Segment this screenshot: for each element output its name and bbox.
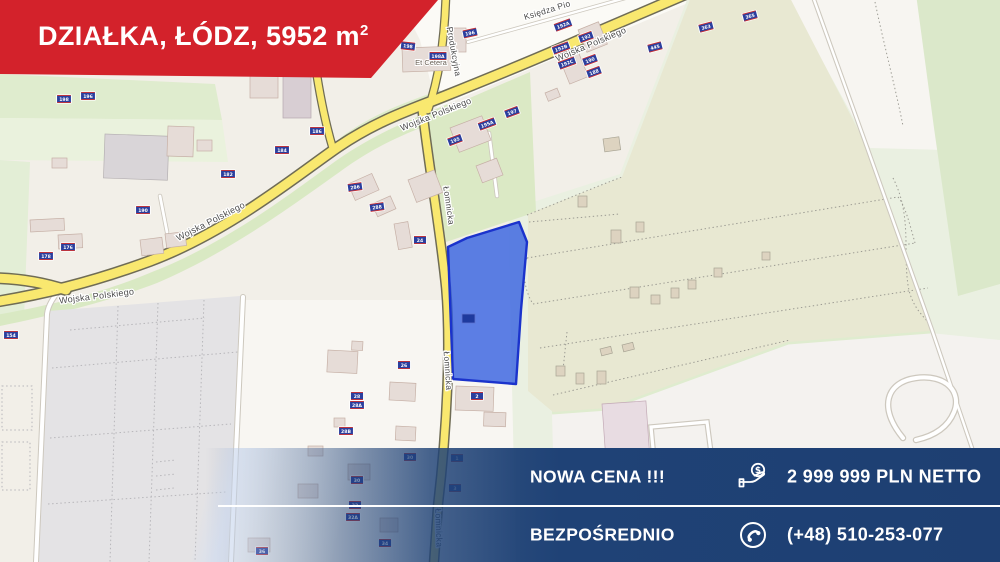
svg-text:176: 176 bbox=[63, 245, 73, 251]
money-in-hand-icon: $ bbox=[733, 457, 773, 497]
svg-text:190: 190 bbox=[138, 208, 148, 214]
svg-text:198: 198 bbox=[403, 43, 413, 50]
address-marker: 154 bbox=[4, 331, 19, 339]
address-marker: 190 bbox=[136, 206, 151, 214]
svg-text:26: 26 bbox=[401, 363, 407, 369]
plot-highlight bbox=[448, 222, 527, 384]
svg-text:24: 24 bbox=[417, 238, 423, 244]
address-marker: 198 bbox=[57, 95, 72, 103]
address-marker: 186 bbox=[310, 127, 325, 135]
address-marker: 178 bbox=[39, 252, 54, 260]
svg-text:182: 182 bbox=[223, 172, 233, 178]
address-marker: 26 bbox=[398, 361, 411, 369]
svg-text:186: 186 bbox=[312, 129, 322, 135]
price-label: NOWA CENA !!! bbox=[530, 466, 665, 487]
address-marker: 182 bbox=[221, 170, 236, 178]
plot-address-marker bbox=[462, 314, 475, 323]
address-marker: 286 bbox=[347, 182, 363, 192]
address-marker: 176 bbox=[61, 243, 76, 251]
contact-value: (+48) 510-253-077 bbox=[787, 524, 943, 545]
svg-text:28B: 28B bbox=[341, 429, 351, 435]
offer-banner: NOWA CENA !!! $ 2 999 999 PLN NETTO BEZP… bbox=[0, 448, 1000, 562]
svg-text:154: 154 bbox=[6, 333, 16, 339]
address-marker: 28A bbox=[350, 401, 365, 409]
title-superscript: 2 bbox=[360, 22, 369, 39]
address-marker: 2 bbox=[471, 392, 484, 400]
contact-row: BEZPOŚREDNIO (+48) 510-253-077 bbox=[0, 507, 1000, 562]
svg-text:28: 28 bbox=[354, 394, 360, 400]
svg-text:2: 2 bbox=[475, 394, 478, 400]
contact-label: BEZPOŚREDNIO bbox=[530, 524, 675, 545]
address-marker: 288 bbox=[369, 202, 385, 212]
svg-text:198A: 198A bbox=[431, 54, 445, 60]
svg-text:178: 178 bbox=[41, 254, 51, 260]
price-row: NOWA CENA !!! $ 2 999 999 PLN NETTO bbox=[0, 448, 1000, 505]
plot-polygon bbox=[448, 222, 527, 384]
phone-icon bbox=[733, 515, 773, 555]
price-value: 2 999 999 PLN NETTO bbox=[787, 466, 981, 487]
svg-text:184: 184 bbox=[277, 148, 287, 154]
address-marker: 184 bbox=[275, 146, 290, 154]
address-marker: 24 bbox=[414, 236, 427, 244]
svg-text:196: 196 bbox=[83, 94, 93, 100]
svg-text:28A: 28A bbox=[352, 403, 362, 409]
page-title: DZIAŁKA, ŁÓDZ, 5952 m2 bbox=[0, 0, 460, 52]
address-marker: 196 bbox=[81, 92, 96, 100]
address-marker: 28 bbox=[351, 392, 364, 400]
svg-text:198: 198 bbox=[59, 97, 69, 103]
svg-text:$: $ bbox=[755, 466, 761, 476]
address-marker: 198A bbox=[429, 52, 447, 60]
listing-flyer: Wojska PolskiegoWojska PolskiegoWojska P… bbox=[0, 0, 1000, 562]
address-marker: 28B bbox=[339, 427, 354, 435]
address-marker: 198 bbox=[400, 41, 416, 51]
